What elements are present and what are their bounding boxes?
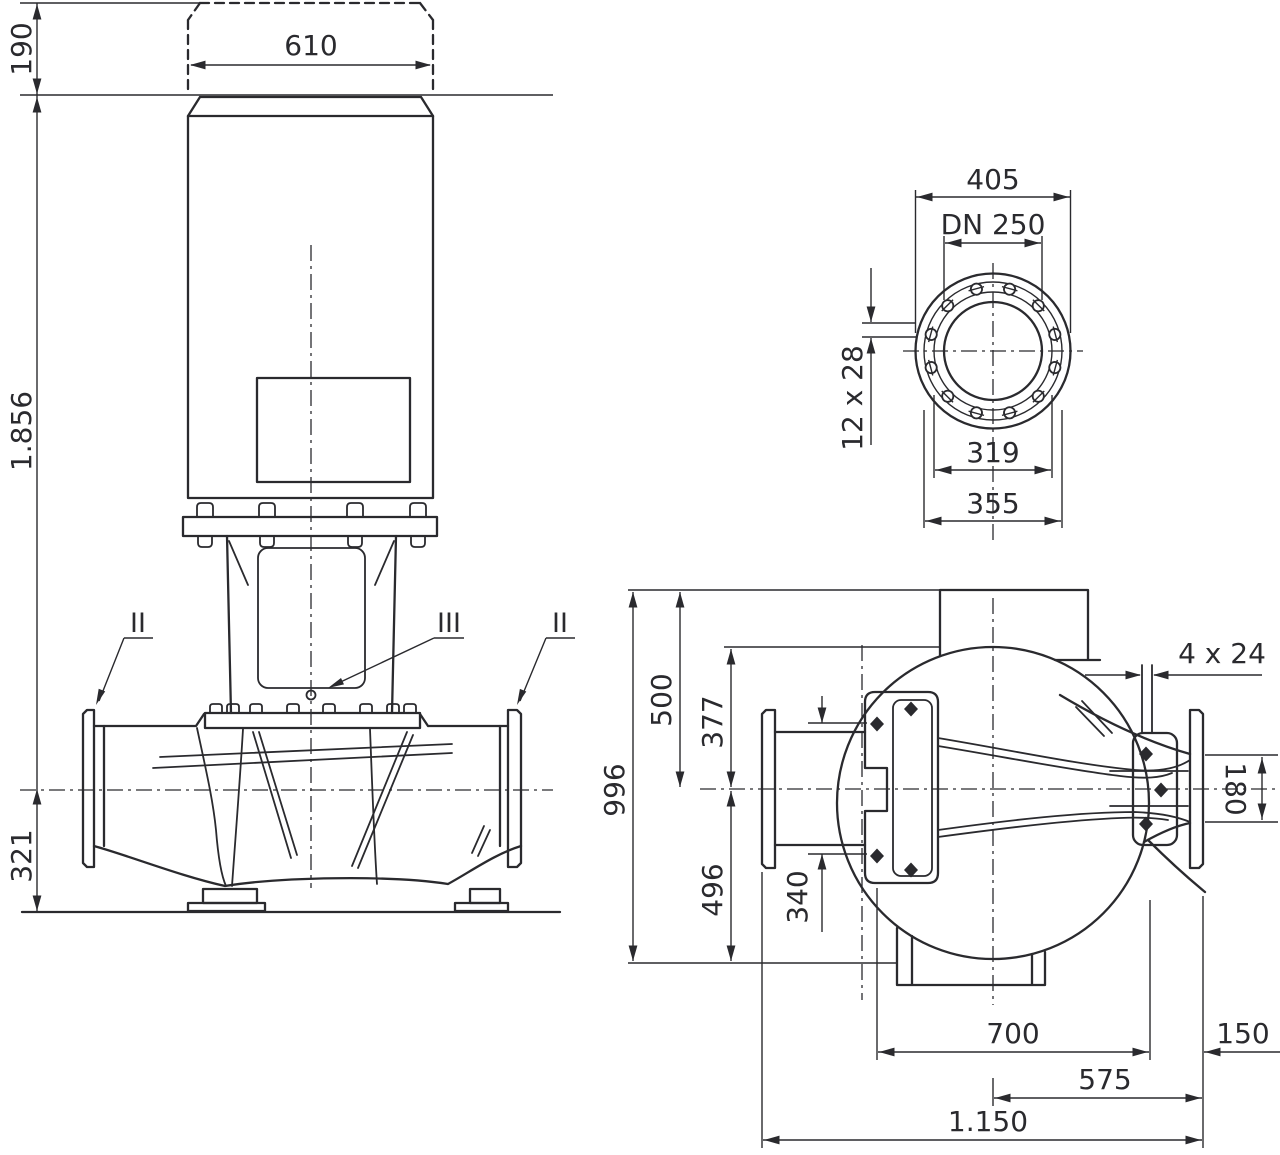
dim-label-500: 500 xyxy=(645,673,678,726)
dim-label-190: 190 xyxy=(5,22,38,75)
pump-dimensional-drawing: 190 1.856 321 610 xyxy=(0,0,1280,1155)
dim-label-321: 321 xyxy=(5,829,38,882)
dim-label-996: 996 xyxy=(598,763,631,816)
section-label-right: II xyxy=(552,608,568,639)
dim-label-dn250: DN 250 xyxy=(941,208,1046,241)
dim-label-575: 575 xyxy=(1078,1063,1131,1096)
sheet-background xyxy=(0,0,1280,1155)
dim-label-1856: 1.856 xyxy=(5,391,38,471)
dim-label-496: 496 xyxy=(696,863,729,916)
section-label-left: II xyxy=(130,608,146,639)
dim-label-610: 610 xyxy=(284,29,337,62)
dim-label-150: 150 xyxy=(1216,1017,1269,1050)
dim-label-340: 340 xyxy=(781,870,814,923)
dim-label-700: 700 xyxy=(986,1017,1039,1050)
dim-label-180: 180 xyxy=(1219,762,1252,815)
dim-label-12x28: 12 x 28 xyxy=(836,345,869,451)
dim-label-405: 405 xyxy=(966,163,1019,196)
dim-label-355: 355 xyxy=(966,487,1019,520)
dim-label-377: 377 xyxy=(696,695,729,748)
dim-label-1150: 1.150 xyxy=(948,1105,1028,1138)
drawing-canvas: 190 1.856 321 610 xyxy=(0,0,1280,1155)
section-label-mid: III xyxy=(437,608,461,639)
dim-label-4x24: 4 x 24 xyxy=(1178,637,1266,670)
dim-label-319: 319 xyxy=(966,436,1019,469)
